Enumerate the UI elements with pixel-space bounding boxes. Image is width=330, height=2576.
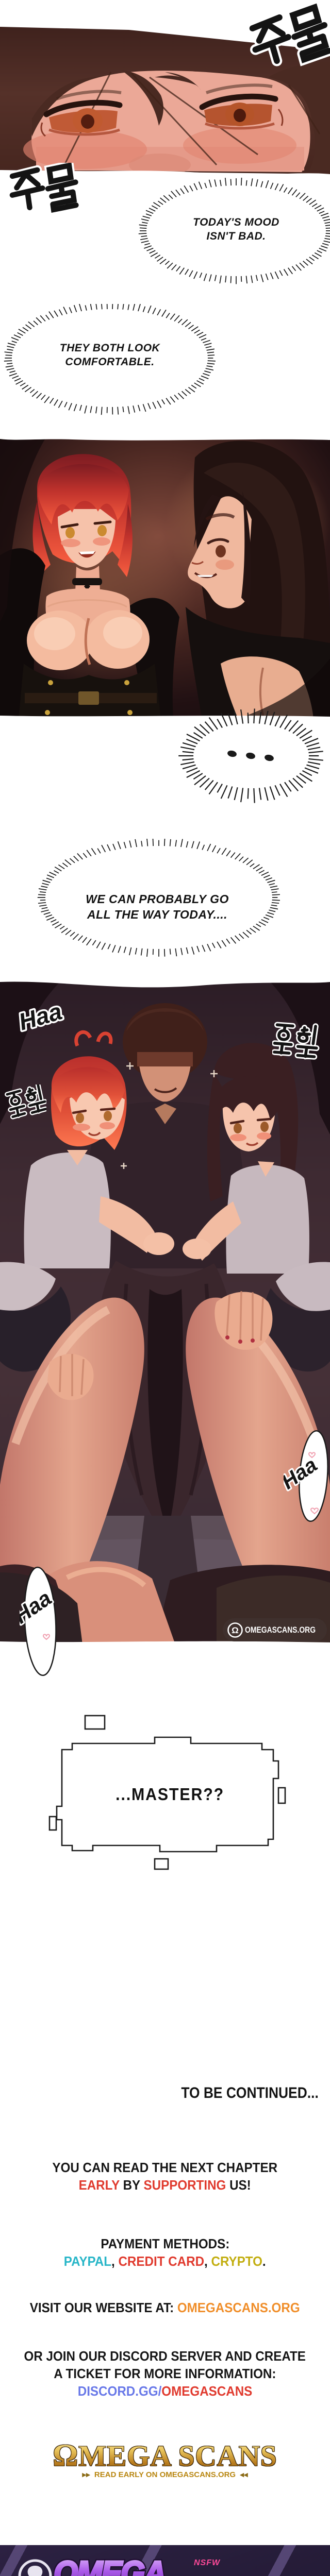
svg-text:NSFW: NSFW bbox=[194, 2558, 221, 2567]
svg-text:Ω: Ω bbox=[232, 1625, 239, 1635]
svg-text:Haa: Haa bbox=[15, 997, 64, 1035]
svg-text:OMEGA: OMEGA bbox=[54, 2555, 165, 2576]
